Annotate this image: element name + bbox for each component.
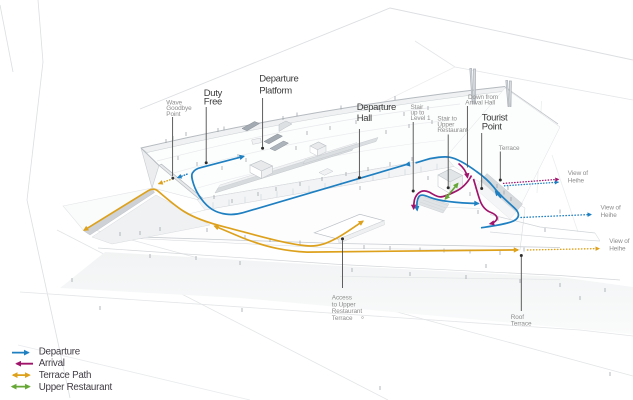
svg-text:Terrace: Terrace <box>332 315 353 322</box>
svg-text:Upper Restaurant: Upper Restaurant <box>39 382 113 393</box>
svg-text:Hall: Hall <box>357 113 372 124</box>
svg-text:View of: View of <box>601 205 621 212</box>
svg-text:Arrival: Arrival <box>39 358 65 369</box>
svg-text:Restaurant: Restaurant <box>437 127 468 134</box>
svg-text:Arrival Hall: Arrival Hall <box>465 100 495 107</box>
svg-text:Departure: Departure <box>39 347 81 358</box>
svg-text:Terrace: Terrace <box>499 145 520 152</box>
svg-text:Heihe: Heihe <box>609 246 626 253</box>
svg-text:View of: View of <box>568 170 588 177</box>
svg-text:Platform: Platform <box>259 85 292 96</box>
svg-text:View of: View of <box>609 238 629 245</box>
svg-text:Departure: Departure <box>357 102 396 113</box>
svg-text:Terrace: Terrace <box>511 320 532 327</box>
svg-text:Level 1: Level 1 <box>411 115 431 122</box>
svg-text:Point: Point <box>482 122 503 133</box>
svg-text:Heihe: Heihe <box>601 212 618 219</box>
svg-text:Point: Point <box>166 111 180 118</box>
svg-text:Departure: Departure <box>259 73 298 84</box>
svg-text:Heihe: Heihe <box>568 178 585 185</box>
svg-text:Terrace Path: Terrace Path <box>39 370 92 381</box>
svg-text:Free: Free <box>204 97 222 108</box>
